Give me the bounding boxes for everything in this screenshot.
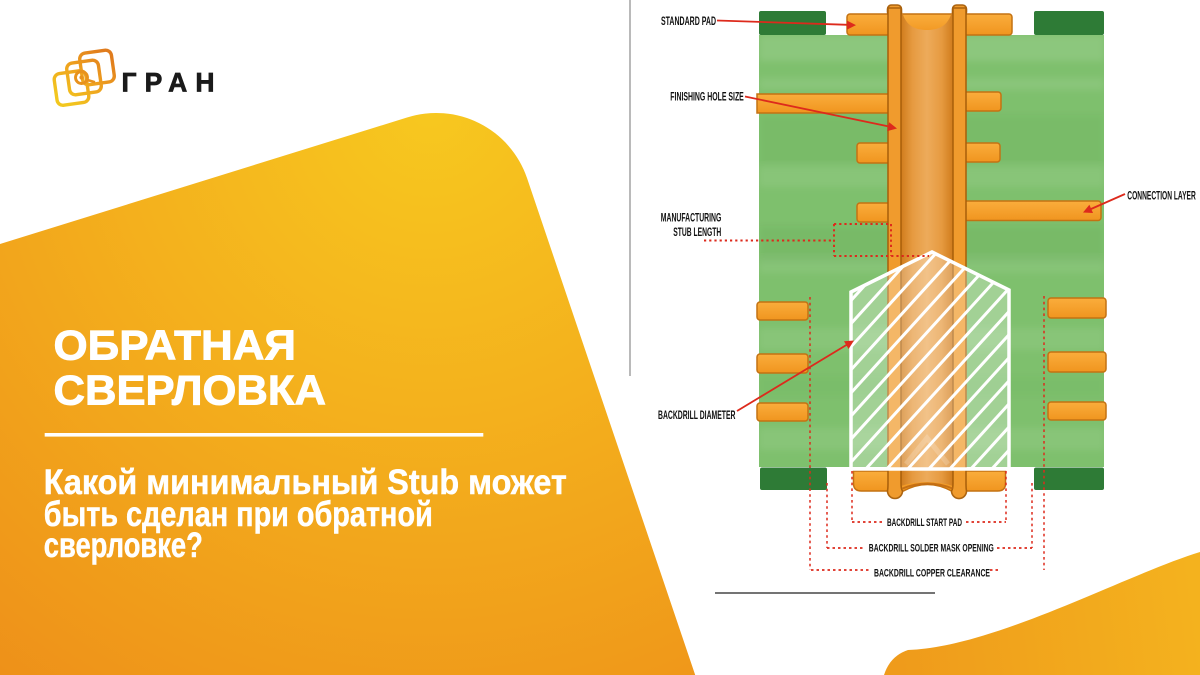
svg-text:BACKDRILL START PAD: BACKDRILL START PAD (887, 517, 962, 529)
svg-text:STUB LENGTH: STUB LENGTH (673, 227, 721, 239)
svg-text:CONNECTION LAYER: CONNECTION LAYER (1127, 191, 1196, 203)
svg-text:BACKDRILL COPPER CLEARANCE: BACKDRILL COPPER CLEARANCE (874, 568, 990, 580)
svg-text:ГРАН: ГРАН (122, 68, 215, 98)
svg-text:ОБРАТНАЯ: ОБРАТНАЯ (54, 322, 297, 369)
svg-text:BACKDRILL SOLDER MASK OPENING: BACKDRILL SOLDER MASK OPENING (869, 543, 994, 555)
svg-text:СВЕРЛОВКА: СВЕРЛОВКА (54, 367, 327, 414)
svg-text:сверловке?: сверловке? (44, 526, 203, 565)
svg-text:MANUFACTURING: MANUFACTURING (661, 213, 722, 225)
svg-text:FINISHING HOLE SIZE: FINISHING HOLE SIZE (670, 92, 744, 104)
svg-text:STANDARD PAD: STANDARD PAD (661, 16, 716, 28)
svg-text:BACKDRILL DIAMETER: BACKDRILL DIAMETER (658, 410, 736, 422)
